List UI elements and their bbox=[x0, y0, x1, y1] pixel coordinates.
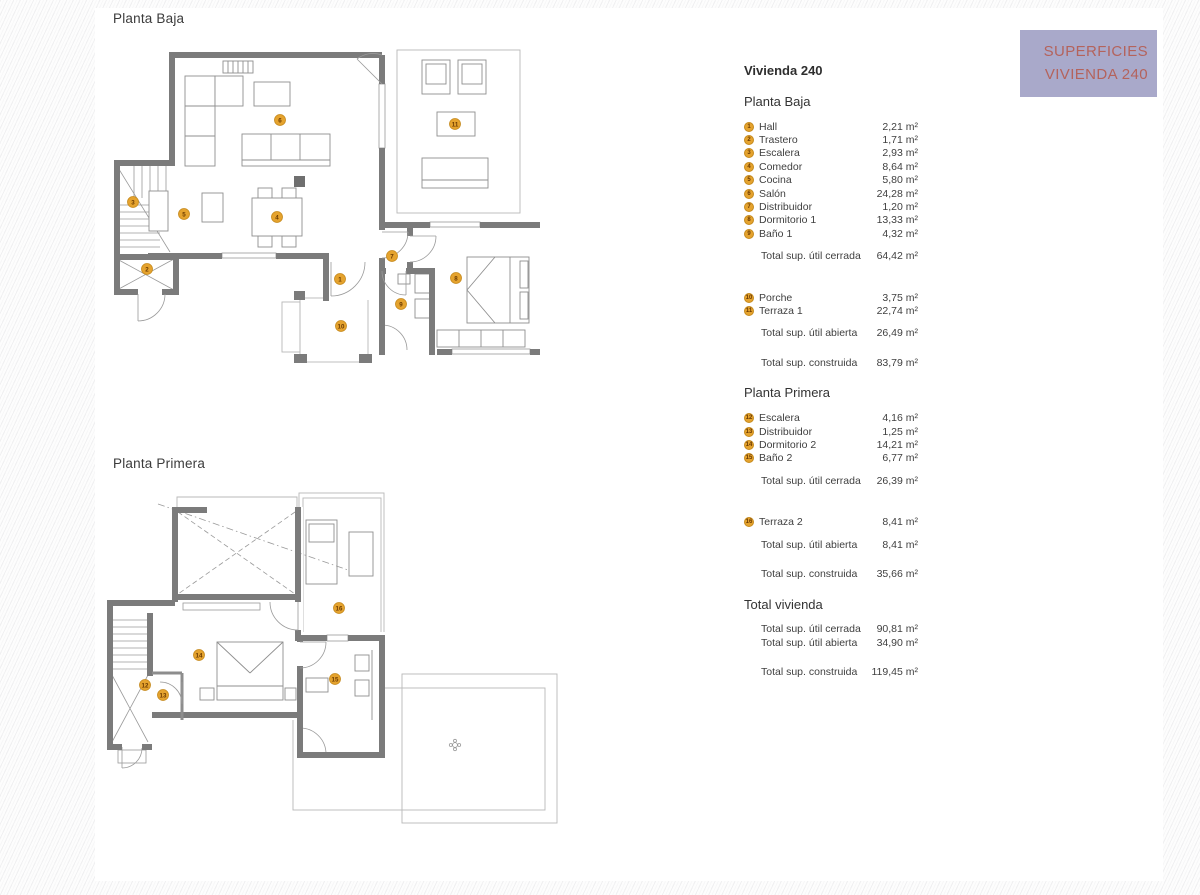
legend-row-value: 4,16 m² bbox=[882, 412, 918, 424]
legend-row-label: Cocina bbox=[759, 174, 882, 186]
deck-ornament bbox=[449, 739, 460, 750]
room-marker-bullet: 7 bbox=[744, 202, 754, 212]
legend-room-row: 10Porche3,75 m² bbox=[744, 291, 918, 304]
legend-row-value: 5,80 m² bbox=[882, 174, 918, 186]
legend-row-value: 22,74 m² bbox=[877, 305, 918, 317]
terraza2-deck bbox=[299, 493, 384, 638]
plan-title-planta-primera: Planta Primera bbox=[113, 456, 205, 471]
legend-room-row: 1Hall2,21 m² bbox=[744, 120, 918, 133]
legend-row-value: 8,41 m² bbox=[882, 539, 918, 551]
legend-row-value: 90,81 m² bbox=[877, 623, 918, 635]
legend-title: Vivienda 240 bbox=[744, 63, 918, 78]
plan-marker-number: 10 bbox=[338, 323, 345, 330]
legend-room-row: 3Escalera2,93 m² bbox=[744, 147, 918, 160]
legend-room-row: 13Distribuidor1,25 m² bbox=[744, 425, 918, 438]
banner-line2: VIVIENDA 240 bbox=[1045, 64, 1148, 87]
room-marker-bullet: 15 bbox=[744, 453, 754, 463]
terraza1-deck bbox=[397, 50, 520, 213]
plan-marker-number: 14 bbox=[196, 652, 203, 659]
room-marker-bullet: 2 bbox=[744, 135, 754, 145]
plan-marker-number: 4 bbox=[275, 214, 279, 221]
room-marker-bullet: 4 bbox=[744, 162, 754, 172]
legend-total-row: Total sup. útil cerrada64,42 m² bbox=[744, 250, 918, 263]
legend-row-label: Distribuidor bbox=[759, 201, 882, 213]
room-marker-bullet: 8 bbox=[744, 215, 754, 225]
legend-room-row: 16Terraza 28,41 m² bbox=[744, 515, 918, 528]
legend-row-label: Trastero bbox=[759, 134, 882, 146]
plan-marker-number: 7 bbox=[390, 253, 394, 260]
legend-row-label: Comedor bbox=[759, 161, 882, 173]
legend-total-row: Total sup. útil abierta26,49 m² bbox=[744, 327, 918, 340]
legend-row-label: Baño 1 bbox=[759, 228, 882, 240]
superficies-banner: SUPERFICIES VIVIENDA 240 bbox=[1020, 30, 1157, 97]
room-marker-bullet: 12 bbox=[744, 413, 754, 423]
legend-row-label: Terraza 2 bbox=[759, 516, 882, 528]
room-marker-bullet: 11 bbox=[744, 306, 754, 316]
legend-row-label: Baño 2 bbox=[759, 452, 882, 464]
legend-room-row: 12Escalera4,16 m² bbox=[744, 411, 918, 424]
plan-marker-number: 15 bbox=[332, 676, 339, 683]
plan-title-planta-baja: Planta Baja bbox=[113, 11, 184, 26]
legend-row-value: 14,21 m² bbox=[877, 439, 918, 451]
legend-row-label: Total sup. útil cerrada bbox=[761, 250, 877, 262]
room-marker-bullet: 5 bbox=[744, 175, 754, 185]
room-marker-bullet: 6 bbox=[744, 189, 754, 199]
legend-total-row: Total sup. construida119,45 m² bbox=[744, 665, 918, 678]
floorplan-planta-baja: 1234567891011 bbox=[110, 40, 540, 370]
legend-section-heading: Planta Primera bbox=[744, 385, 918, 400]
plan-marker-number: 8 bbox=[454, 275, 458, 282]
room-marker-bullet: 10 bbox=[744, 293, 754, 303]
plan-marker-number: 9 bbox=[399, 301, 403, 308]
slide-canvas: Planta Baja bbox=[0, 0, 1200, 895]
legend-row-value: 3,75 m² bbox=[882, 292, 918, 304]
legend-total-row: Total sup. útil abierta34,90 m² bbox=[744, 636, 918, 649]
legend-row-value: 26,49 m² bbox=[877, 327, 918, 339]
room-marker-bullet: 16 bbox=[744, 517, 754, 527]
legend-row-label: Salón bbox=[759, 188, 877, 200]
plan-marker-number: 11 bbox=[452, 121, 459, 128]
legend-row-label: Total sup. construida bbox=[761, 666, 872, 678]
legend-row-value: 4,32 m² bbox=[882, 228, 918, 240]
plan-marker-number: 16 bbox=[336, 605, 343, 612]
legend-total-row: Total sup. construida83,79 m² bbox=[744, 356, 918, 369]
legend-row-value: 119,45 m² bbox=[872, 666, 919, 678]
legend-row-label: Escalera bbox=[759, 147, 882, 159]
surface-legend: Vivienda 240 Planta Baja1Hall2,21 m²2Tra… bbox=[744, 63, 918, 679]
legend-row-label: Total sup. útil abierta bbox=[761, 637, 877, 649]
legend-row-label: Dormitorio 2 bbox=[759, 439, 877, 451]
legend-total-row: Total sup. útil abierta8,41 m² bbox=[744, 538, 918, 551]
plan-marker-number: 12 bbox=[142, 682, 149, 689]
legend-row-value: 6,77 m² bbox=[882, 452, 918, 464]
legend-room-row: 11Terraza 122,74 m² bbox=[744, 304, 918, 317]
legend-row-label: Dormitorio 1 bbox=[759, 214, 877, 226]
legend-row-value: 13,33 m² bbox=[877, 214, 918, 226]
legend-room-row: 15Baño 26,77 m² bbox=[744, 452, 918, 465]
floorplan-planta-primera: 1213141516 bbox=[100, 490, 570, 830]
legend-row-label: Total sup. útil abierta bbox=[761, 539, 882, 551]
legend-row-label: Total sup. útil cerrada bbox=[761, 623, 877, 635]
legend-row-label: Terraza 1 bbox=[759, 305, 877, 317]
plan-marker-number: 3 bbox=[131, 199, 135, 206]
legend-row-value: 1,20 m² bbox=[882, 201, 918, 213]
legend-row-value: 24,28 m² bbox=[877, 188, 918, 200]
porche-deck bbox=[282, 291, 372, 363]
plan-marker-number: 1 bbox=[338, 276, 342, 283]
legend-room-row: 8Dormitorio 113,33 m² bbox=[744, 214, 918, 227]
legend-row-label: Total sup. construida bbox=[761, 357, 877, 369]
legend-body: Planta Baja1Hall2,21 m²2Trastero1,71 m²3… bbox=[744, 94, 918, 679]
legend-room-row: 9Baño 14,32 m² bbox=[744, 227, 918, 240]
legend-row-label: Porche bbox=[759, 292, 882, 304]
legend-row-value: 8,64 m² bbox=[882, 161, 918, 173]
legend-room-row: 4Comedor8,64 m² bbox=[744, 160, 918, 173]
legend-row-value: 35,66 m² bbox=[877, 568, 918, 580]
banner-line1: SUPERFICIES bbox=[1044, 41, 1148, 64]
legend-row-value: 34,90 m² bbox=[877, 637, 918, 649]
plan-marker-number: 2 bbox=[145, 266, 149, 273]
room-marker-bullet: 1 bbox=[744, 122, 754, 132]
room-marker-bullet: 9 bbox=[744, 229, 754, 239]
legend-room-row: 14Dormitorio 214,21 m² bbox=[744, 438, 918, 451]
legend-row-label: Hall bbox=[759, 121, 882, 133]
plan-marker-number: 6 bbox=[278, 117, 282, 124]
legend-row-value: 2,93 m² bbox=[882, 147, 918, 159]
legend-row-value: 2,21 m² bbox=[882, 121, 918, 133]
legend-row-value: 64,42 m² bbox=[877, 250, 918, 262]
room-marker-bullet: 13 bbox=[744, 427, 754, 437]
plan-marker-number: 5 bbox=[182, 211, 186, 218]
legend-section-heading: Planta Baja bbox=[744, 94, 918, 109]
planta-primera-drawing: 1213141516 bbox=[100, 490, 570, 830]
legend-room-row: 7Distribuidor1,20 m² bbox=[744, 200, 918, 213]
legend-row-value: 1,71 m² bbox=[882, 134, 918, 146]
legend-row-value: 26,39 m² bbox=[877, 475, 918, 487]
legend-total-heading: Total vivienda bbox=[744, 597, 918, 612]
legend-row-value: 1,25 m² bbox=[882, 426, 918, 438]
legend-total-row: Total sup. útil cerrada90,81 m² bbox=[744, 623, 918, 636]
legend-row-label: Total sup. útil cerrada bbox=[761, 475, 877, 487]
legend-row-label: Total sup. construida bbox=[761, 568, 877, 580]
legend-row-label: Total sup. útil abierta bbox=[761, 327, 877, 339]
legend-total-row: Total sup. construida35,66 m² bbox=[744, 567, 918, 580]
legend-row-label: Distribuidor bbox=[759, 426, 882, 438]
room-marker-bullet: 3 bbox=[744, 148, 754, 158]
legend-row-label: Escalera bbox=[759, 412, 882, 424]
legend-room-row: 5Cocina5,80 m² bbox=[744, 174, 918, 187]
room-marker-bullet: 14 bbox=[744, 440, 754, 450]
planta-baja-drawing: 1234567891011 bbox=[110, 40, 540, 370]
plan-marker-number: 13 bbox=[160, 692, 167, 699]
legend-row-value: 8,41 m² bbox=[882, 516, 918, 528]
legend-row-value: 83,79 m² bbox=[877, 357, 918, 369]
legend-room-row: 2Trastero1,71 m² bbox=[744, 133, 918, 146]
legend-room-row: 6Salón24,28 m² bbox=[744, 187, 918, 200]
legend-total-row: Total sup. útil cerrada26,39 m² bbox=[744, 474, 918, 487]
